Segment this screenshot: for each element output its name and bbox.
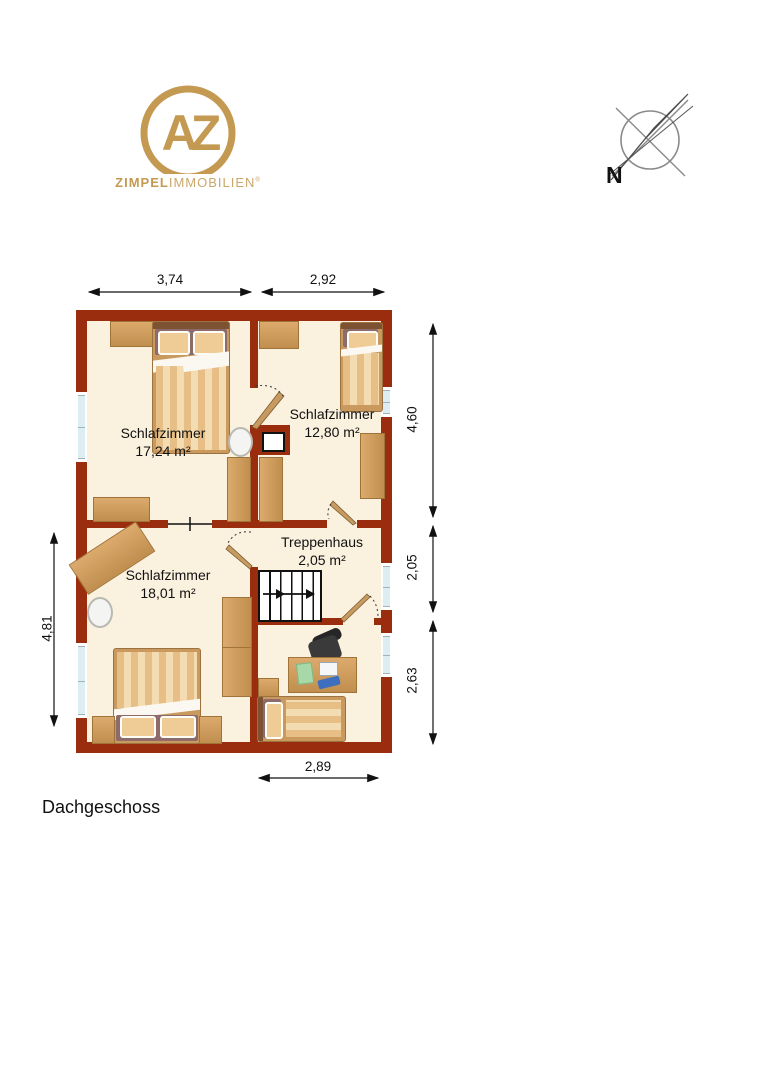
dim-label-top-right: 2,92 bbox=[293, 272, 353, 287]
nightstand-left-bedroom3 bbox=[92, 716, 115, 744]
room-label-bedroom1: Schlafzimmer 17,24 m² bbox=[93, 424, 233, 460]
wardrobe-bedroom3 bbox=[222, 597, 252, 697]
wall-top bbox=[76, 310, 392, 321]
wardrobe-bedroom2 bbox=[259, 321, 299, 349]
staircase bbox=[258, 570, 322, 622]
wall-interior-horizontal-c bbox=[357, 520, 381, 528]
brand-name: ZIMPELIMMOBILIEN® bbox=[110, 174, 266, 191]
room-label-bedroom3: Schlafzimmer 18,01 m² bbox=[98, 566, 238, 602]
svg-text:AZ: AZ bbox=[162, 105, 221, 161]
window-left-lower bbox=[76, 643, 87, 718]
shelf-bedroom1 bbox=[110, 321, 155, 347]
dim-label-bottom: 2,89 bbox=[288, 759, 348, 774]
brand-name-bold: ZIMPEL bbox=[115, 175, 169, 190]
room-area: 12,80 m² bbox=[270, 423, 394, 441]
wardrobe-bedroom1 bbox=[93, 497, 150, 522]
wall-right-lower1 bbox=[381, 610, 392, 633]
desk-paper-green bbox=[296, 662, 314, 685]
wall-below-stairs-b bbox=[374, 618, 381, 625]
single-bed-room4 bbox=[257, 696, 346, 742]
room-area: 18,01 m² bbox=[98, 584, 238, 602]
window-right-middle bbox=[381, 563, 392, 610]
dim-label-left: 4,81 bbox=[40, 599, 55, 659]
cabinet-bedroom2 bbox=[259, 457, 283, 522]
page: { "brand": { "monogram": "AZ", "name_bol… bbox=[0, 0, 763, 1080]
window-left-upper bbox=[76, 392, 87, 462]
room-area: 17,24 m² bbox=[93, 442, 233, 460]
dim-label-right-upper: 4,60 bbox=[405, 390, 420, 450]
wall-left-lower bbox=[76, 718, 87, 753]
dim-label-top-left: 3,74 bbox=[140, 272, 200, 287]
wall-left-upper bbox=[76, 310, 87, 392]
single-bed-bedroom2 bbox=[340, 322, 383, 412]
wall-interior-vertical-upper-a bbox=[250, 321, 258, 388]
room-name: Treppenhaus bbox=[260, 533, 384, 551]
room-label-bedroom2: Schlafzimmer 12,80 m² bbox=[270, 405, 394, 441]
floor-title: Dachgeschoss bbox=[42, 797, 160, 818]
dim-label-right-middle: 2,05 bbox=[405, 538, 420, 598]
wall-interior-vertical-upper-b bbox=[250, 455, 258, 520]
room-label-stairwell: Treppenhaus 2,05 m² bbox=[260, 533, 384, 569]
room-area: 2,05 m² bbox=[260, 551, 384, 569]
room-name: Schlafzimmer bbox=[270, 405, 394, 423]
compass-north-label: N bbox=[606, 162, 623, 189]
sideboard-bedroom2 bbox=[360, 433, 385, 499]
double-bed-bedroom3 bbox=[113, 648, 201, 744]
room-name: Schlafzimmer bbox=[93, 424, 233, 442]
registered-mark: ® bbox=[255, 178, 260, 184]
wall-right-lower2 bbox=[381, 677, 392, 753]
cabinet-room4 bbox=[258, 678, 279, 698]
brand-name-light: IMMOBILIEN bbox=[169, 175, 256, 190]
cabinet-bedroom1 bbox=[227, 457, 251, 522]
window-right-lower bbox=[381, 633, 392, 677]
desk-paper-white bbox=[319, 662, 338, 676]
nightstand-right-bedroom3 bbox=[199, 716, 222, 744]
room-name: Schlafzimmer bbox=[98, 566, 238, 584]
dim-label-right-lower: 2,63 bbox=[405, 651, 420, 711]
